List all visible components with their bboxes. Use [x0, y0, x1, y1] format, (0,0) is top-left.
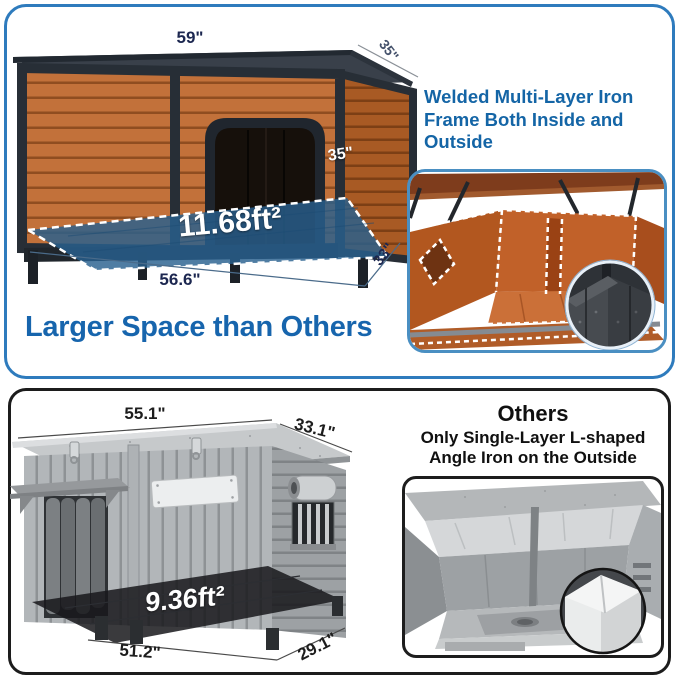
zoom-detail-circle [565, 260, 655, 350]
larger-space-caption: Larger Space than Others [25, 311, 445, 344]
others-interior-inset-photo [402, 476, 664, 658]
inner-frame-inset-photo [407, 169, 667, 353]
zoom-detail-circle [561, 569, 645, 655]
dim-roof-width-label: 55.1" [100, 404, 190, 424]
others-title: Others [402, 401, 664, 427]
others-open-interior [405, 479, 661, 655]
dim-base-width-label: 56.6" [130, 270, 230, 290]
open-house-interior [410, 172, 664, 350]
dim-height-label: 35" [327, 144, 355, 165]
product-comparison-image: 59" 35" 35" 11.68ft² 56.6" 33" Welded Mu… [0, 0, 679, 679]
feature-title: Welded Multi-Layer Iron Frame Both Insid… [424, 86, 678, 154]
others-subtitle: Only Single-Layer L-shaped Angle Iron on… [398, 428, 668, 469]
others-house-photo [10, 398, 366, 674]
name-plate [151, 475, 239, 508]
dim-roof-width-label: 59" [160, 28, 220, 48]
side-window [288, 476, 336, 550]
